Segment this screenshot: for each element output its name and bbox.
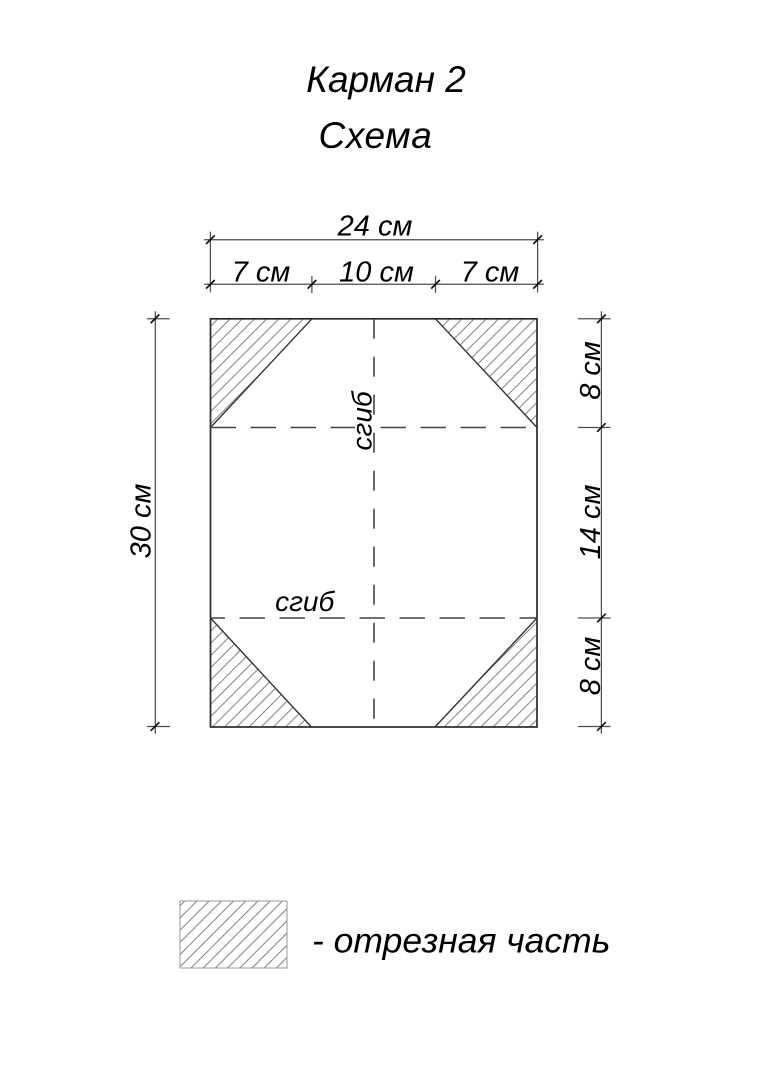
- svg-text:сгиб: сгиб: [347, 390, 378, 450]
- svg-text:30 см: 30 см: [126, 484, 158, 559]
- svg-text:8 см: 8 см: [575, 637, 607, 696]
- svg-text:10 см: 10 см: [339, 257, 414, 289]
- svg-text:Схема: Схема: [319, 115, 433, 156]
- svg-text:сгиб: сгиб: [275, 586, 335, 617]
- svg-text:- отрезная часть: - отрезная часть: [312, 921, 610, 961]
- svg-text:Карман 2: Карман 2: [306, 59, 466, 100]
- svg-text:7 см: 7 см: [232, 257, 291, 289]
- svg-text:14 см: 14 см: [575, 485, 607, 560]
- svg-text:24 см: 24 см: [337, 211, 413, 243]
- svg-text:7 см: 7 см: [461, 257, 520, 289]
- svg-text:8 см: 8 см: [575, 341, 607, 400]
